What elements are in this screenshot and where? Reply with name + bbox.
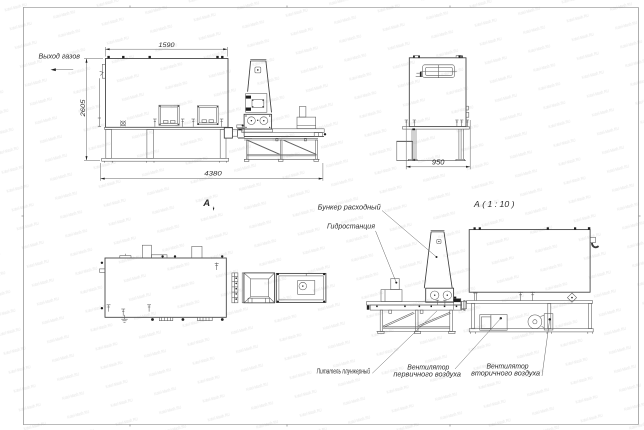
svg-text:Вентилятор: Вентилятор — [487, 363, 529, 370]
svg-text:Питатель плунжерный: Питатель плунжерный — [317, 367, 371, 375]
svg-text:2605: 2605 — [80, 99, 87, 117]
svg-text:А ( 1 : 10 ): А ( 1 : 10 ) — [473, 200, 515, 209]
svg-text:первичного воздуха: первичного воздуха — [393, 370, 461, 378]
svg-text:Выход газов: Выход газов — [39, 52, 81, 61]
svg-text:4380: 4380 — [204, 170, 222, 177]
svg-text:1590: 1590 — [159, 42, 175, 49]
svg-text:Вентилятор: Вентилятор — [407, 364, 449, 371]
svg-text:Бункер расходный: Бункер расходный — [318, 203, 381, 211]
svg-text:Гидростанция: Гидростанция — [327, 223, 375, 231]
svg-text:950: 950 — [432, 160, 445, 167]
svg-text:А: А — [202, 198, 210, 209]
svg-text:вторичного воздуха: вторичного воздуха — [471, 369, 540, 377]
